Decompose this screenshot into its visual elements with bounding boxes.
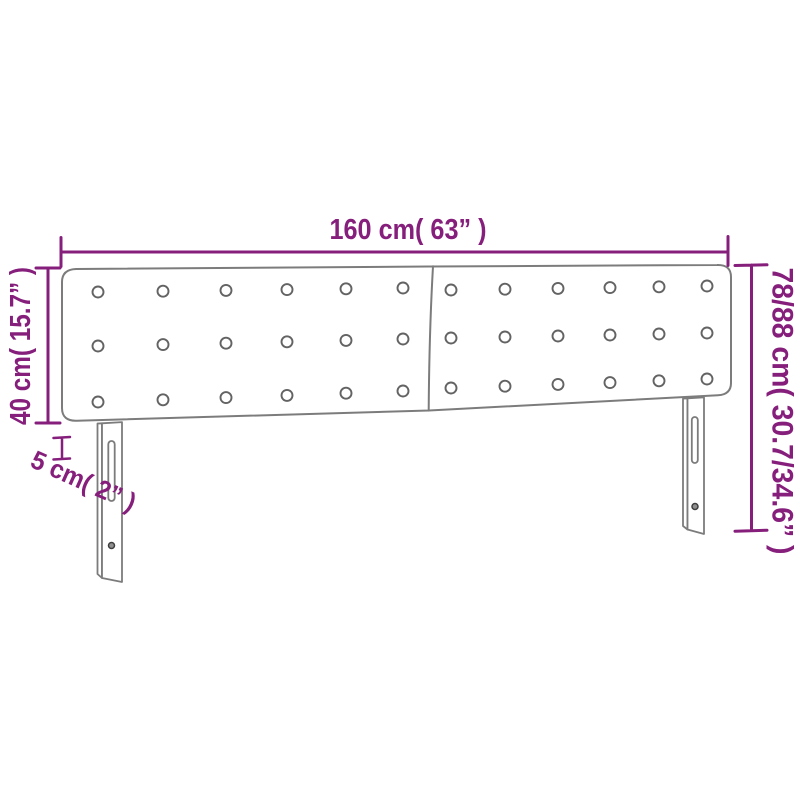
product-diagram: 160 cm( 63” ) 40 cm( 15.7” ) 5 cm( 2” ) … [0, 0, 800, 800]
panel-height-dimension-line [36, 268, 60, 423]
tufting-button [93, 341, 104, 352]
tufting-button [93, 287, 104, 298]
panel-height-dimension: 40 cm( 15.7” ) [5, 267, 60, 425]
tufting-button [500, 284, 511, 295]
tufting-button [398, 386, 409, 397]
tufting-button [398, 334, 409, 345]
tufting-button [500, 332, 511, 343]
tufting-button [282, 390, 293, 401]
tufting-button [398, 283, 409, 294]
right-leg-slot [692, 417, 698, 463]
thickness-dimension: 5 cm( 2” ) [26, 437, 141, 517]
width-dimension: 160 cm( 63” ) [61, 214, 728, 267]
tufting-button [341, 335, 352, 346]
tufting-button [702, 281, 713, 292]
tufting-button [654, 329, 665, 340]
tufting-button [341, 388, 352, 399]
tufting-button [446, 383, 457, 394]
tufting-button [605, 282, 616, 293]
right-leg-screw-hole-icon [692, 504, 698, 510]
tufting-button [654, 375, 665, 386]
panel-height-dimension-label: 40 cm( 15.7” ) [5, 267, 37, 425]
thickness-dimension-label: 5 cm( 2” ) [26, 444, 141, 517]
tufting-button [605, 330, 616, 341]
tufting-button [605, 377, 616, 388]
tufting-button [446, 333, 457, 344]
tufting-button [553, 331, 564, 342]
tufting-button [158, 394, 169, 405]
tufting-button [702, 374, 713, 385]
total-height-dimension-label: 78/88 cm( 30.7/34.6” ) [766, 268, 799, 555]
tufting-button [654, 281, 665, 292]
width-dimension-label: 160 cm( 63” ) [330, 214, 487, 246]
tufting-button [221, 285, 232, 296]
tufting-button [221, 338, 232, 349]
diagram-canvas: 160 cm( 63” ) 40 cm( 15.7” ) 5 cm( 2” ) … [0, 0, 800, 800]
tufting-button [282, 336, 293, 347]
tufting-button [341, 283, 352, 294]
tufting-button [500, 381, 511, 392]
tufting-button [158, 286, 169, 297]
headboard [62, 265, 731, 421]
total-height-dimension-line [735, 265, 767, 531]
tufting-button [221, 392, 232, 403]
total-height-dimension: 78/88 cm( 30.7/34.6” ) [735, 265, 799, 555]
tufting-button [553, 379, 564, 390]
left-leg-screw-hole-icon [109, 543, 115, 549]
tufting-button [282, 284, 293, 295]
right-leg [683, 397, 704, 534]
tufting-button [553, 283, 564, 294]
tufting-button [158, 339, 169, 350]
tufting-button [702, 328, 713, 339]
tufting-button [446, 285, 457, 296]
tufting-button [93, 397, 104, 408]
